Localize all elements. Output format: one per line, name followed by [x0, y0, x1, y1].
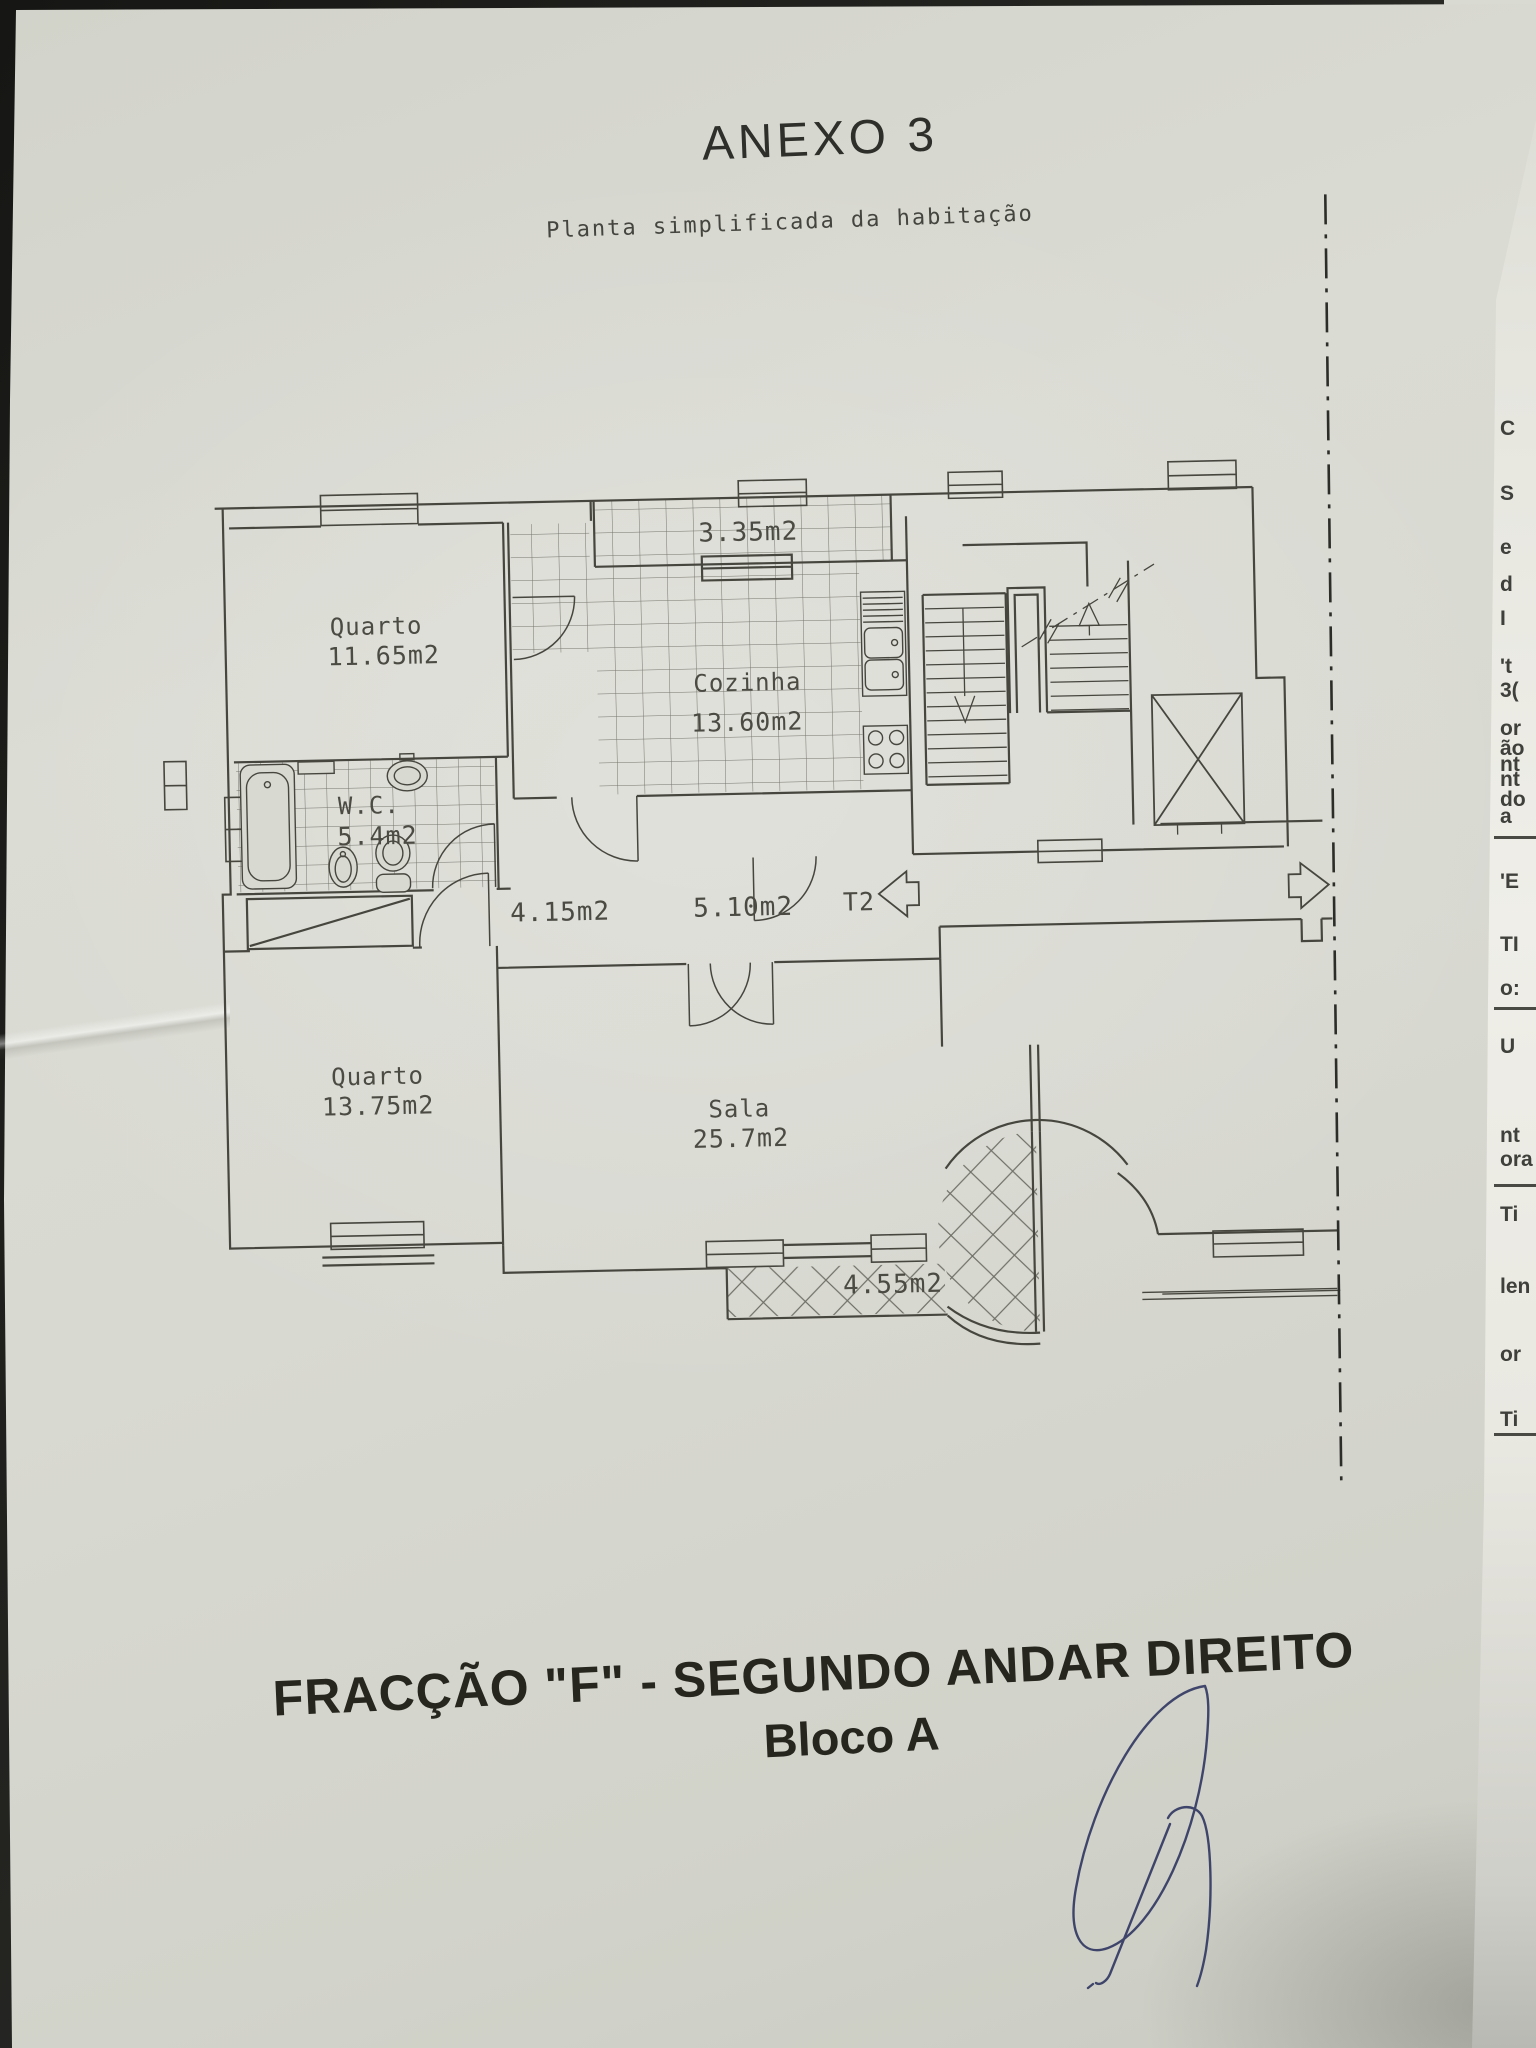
page-content: ANEXO 3 Planta simplificada da habitação [0, 0, 1536, 2048]
signature-ink [0, 0, 1536, 2048]
scanned-document: { "document": { "title": "ANEXO 3", "sub… [0, 0, 1536, 2048]
